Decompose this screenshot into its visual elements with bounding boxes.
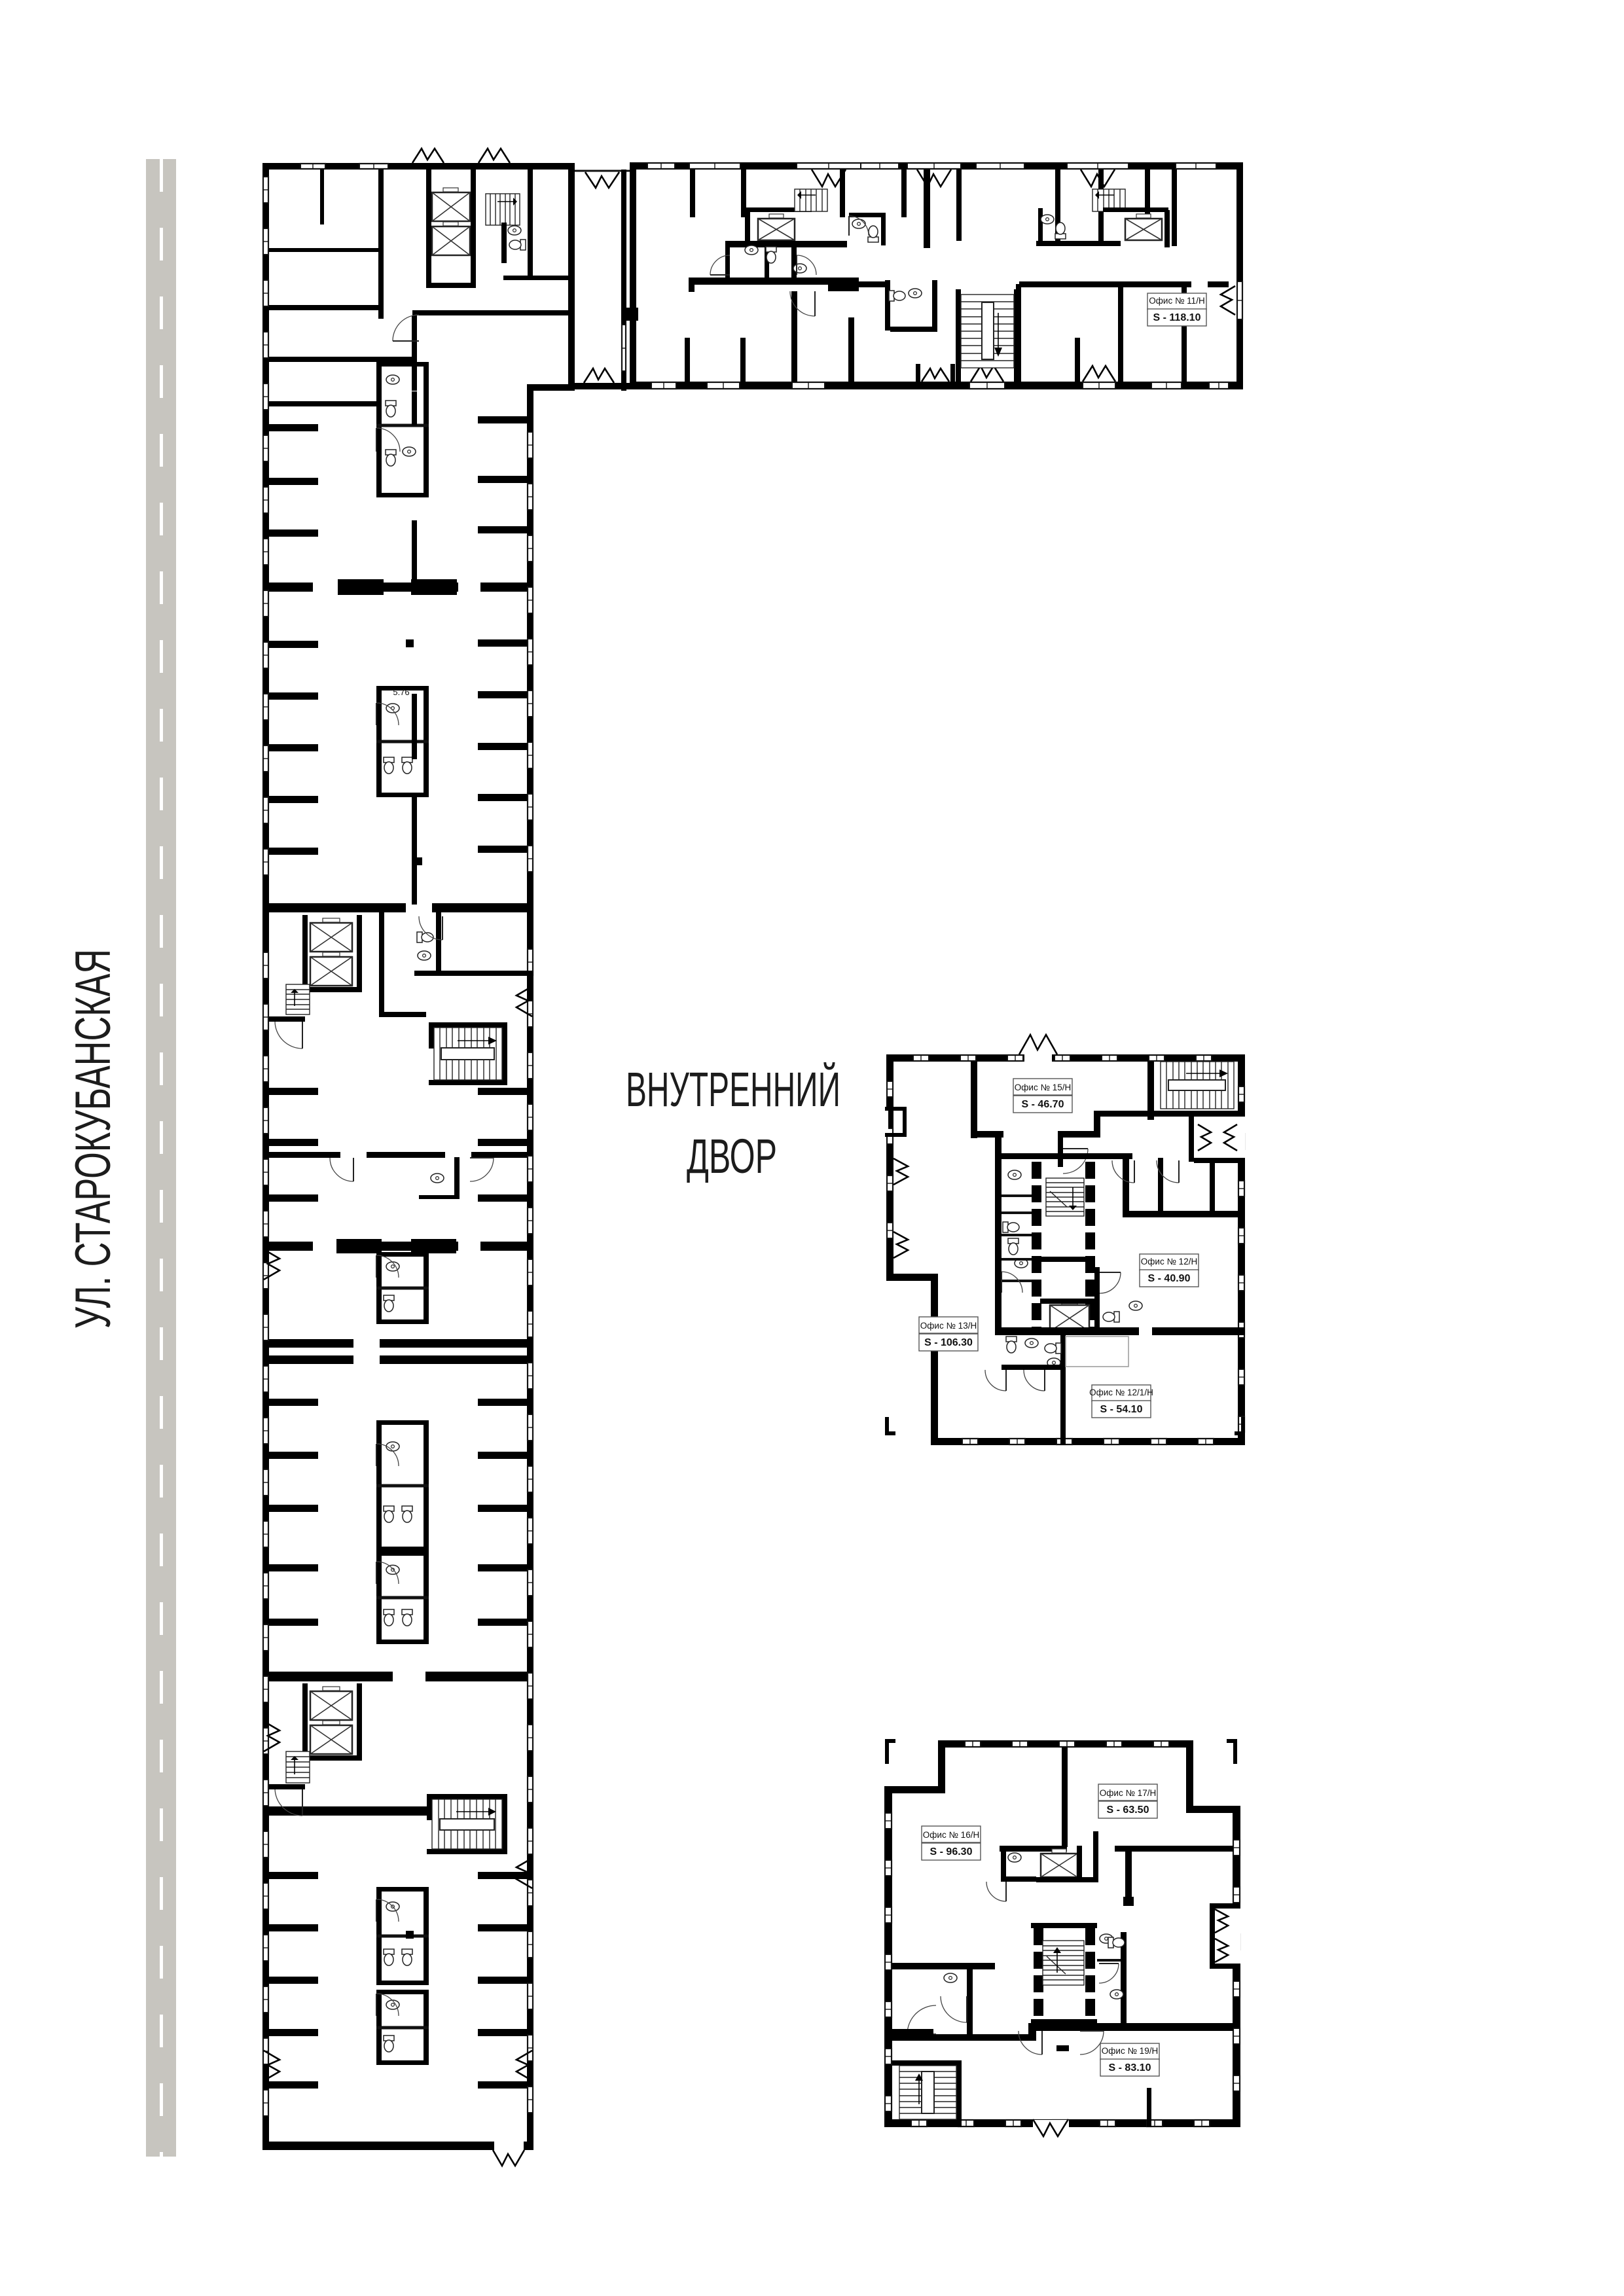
svg-text:S - 63.50: S - 63.50 [1107,1804,1149,1816]
svg-text:Офис № 17/Н: Офис № 17/Н [1100,1788,1156,1798]
svg-text:5.76: 5.76 [393,687,409,697]
svg-text:S - 106.30: S - 106.30 [924,1337,973,1348]
svg-text:S - 118.10: S - 118.10 [1153,312,1201,323]
svg-text:S - 40.90: S - 40.90 [1148,1273,1191,1284]
svg-text:Офис № 12/1/Н: Офис № 12/1/Н [1089,1388,1153,1397]
svg-text:Офис № 12/Н: Офис № 12/Н [1141,1257,1197,1266]
svg-text:Офис № 11/Н: Офис № 11/Н [1149,296,1204,306]
svg-text:ДВОР: ДВОР [687,1129,777,1183]
svg-text:УЛ. СТАРОКУБАНСКАЯ: УЛ. СТАРОКУБАНСКАЯ [65,949,121,1329]
svg-text:ВНУТРЕННИЙ: ВНУТРЕННИЙ [626,1062,840,1117]
svg-text:S - 46.70: S - 46.70 [1022,1099,1064,1110]
svg-text:Офис № 15/Н: Офис № 15/Н [1015,1083,1071,1092]
svg-text:Офис № 19/Н: Офис № 19/Н [1102,2046,1158,2056]
svg-text:S - 83.10: S - 83.10 [1109,2062,1151,2073]
svg-text:Офис № 16/Н: Офис № 16/Н [923,1830,979,1840]
svg-text:S - 54.10: S - 54.10 [1100,1404,1143,1415]
svg-text:S - 96.30: S - 96.30 [930,1846,973,1857]
svg-text:Офис № 13/Н: Офис № 13/Н [920,1321,977,1331]
